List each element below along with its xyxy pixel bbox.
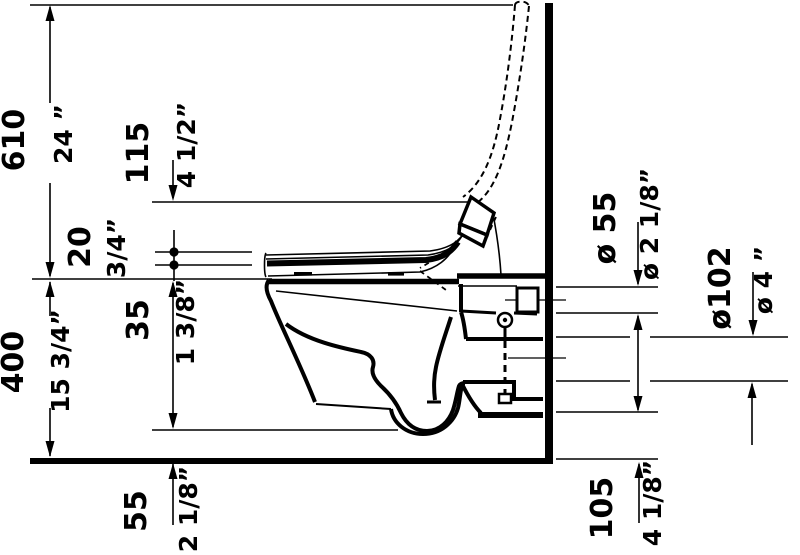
dimension-labels: 610 24 ” 115 4 1/2” 20 3/4” 35 1 3/8” 40… — [0, 102, 778, 552]
lid-back-silhouette — [493, 214, 501, 275]
label-dia102-inch: ø 4 ” — [749, 246, 778, 314]
arrow-dia102-up — [748, 382, 757, 398]
shell-back-curve — [462, 384, 481, 413]
label-115-mm: 115 — [121, 122, 156, 185]
seat-bumper-front — [294, 272, 312, 276]
inner-shelf-line — [276, 291, 457, 311]
label-610-inch: 24 ” — [49, 104, 78, 164]
raised-lid-dashed — [420, 2, 529, 290]
bowl-front-outline — [267, 280, 315, 402]
seat-hinge-unit — [459, 197, 494, 246]
lid-edge-line — [266, 236, 462, 259]
technical-drawing-canvas: 610 24 ” 115 4 1/2” 20 3/4” 35 1 3/8” 40… — [0, 0, 800, 555]
arrow-400-down — [46, 441, 55, 457]
label-35-inch: 1 3/8” — [171, 279, 200, 365]
seat-bumper-rear — [388, 272, 404, 276]
label-115-inch: 4 1/2” — [172, 102, 201, 188]
toilet-dimension-drawing: 610 24 ” 115 4 1/2” 20 3/4” 35 1 3/8” 40… — [0, 0, 800, 555]
label-55-inch: 2 1/8” — [174, 466, 203, 552]
bowl-inner-outline — [286, 324, 465, 431]
arrow-mid-right-up — [634, 314, 643, 330]
extension-lines — [30, 5, 788, 459]
dot-20-lower — [169, 260, 178, 269]
lid-top-line — [266, 230, 466, 255]
label-400-inch: 15 3/4” — [46, 309, 75, 413]
label-35-mm: 35 — [121, 299, 156, 341]
arrow-400-up — [46, 281, 55, 297]
label-105-mm: 105 — [585, 477, 620, 540]
arrow-610-down — [46, 262, 55, 278]
label-610-mm: 610 — [0, 109, 32, 172]
label-dia102-mm: ø102 — [703, 246, 738, 329]
fixing-bolt-center — [503, 318, 507, 322]
seat-front-edge — [265, 253, 267, 277]
floor-line — [30, 458, 553, 464]
label-dia55-inch: ø 2 1/8” — [635, 168, 664, 280]
label-400-mm: 400 — [0, 331, 31, 394]
duct-left-curve — [461, 312, 466, 339]
mounting-hardware — [498, 288, 538, 403]
bowl-bottom-thin-line — [316, 404, 391, 409]
label-dia55-mm: ø 55 — [588, 192, 623, 265]
raised-lid-inner-edge — [463, 5, 515, 197]
wall-section — [545, 3, 553, 460]
arrow-mid-right-down — [634, 396, 643, 412]
trap-inner-curve — [434, 317, 451, 400]
raised-lid-top-cap — [515, 2, 529, 6]
supply-pipe-section — [517, 288, 538, 312]
label-20-inch: 3/4” — [102, 218, 131, 278]
label-55-mm: 55 — [119, 490, 154, 532]
arrow-610-up — [46, 5, 55, 21]
arrow-35-down — [169, 413, 178, 429]
dot-20-upper — [169, 247, 178, 256]
fixing-nut — [499, 394, 511, 403]
label-105-inch: 4 1/8” — [638, 460, 667, 546]
label-20-mm: 20 — [63, 226, 98, 268]
arrow-dia102-down — [749, 320, 758, 336]
